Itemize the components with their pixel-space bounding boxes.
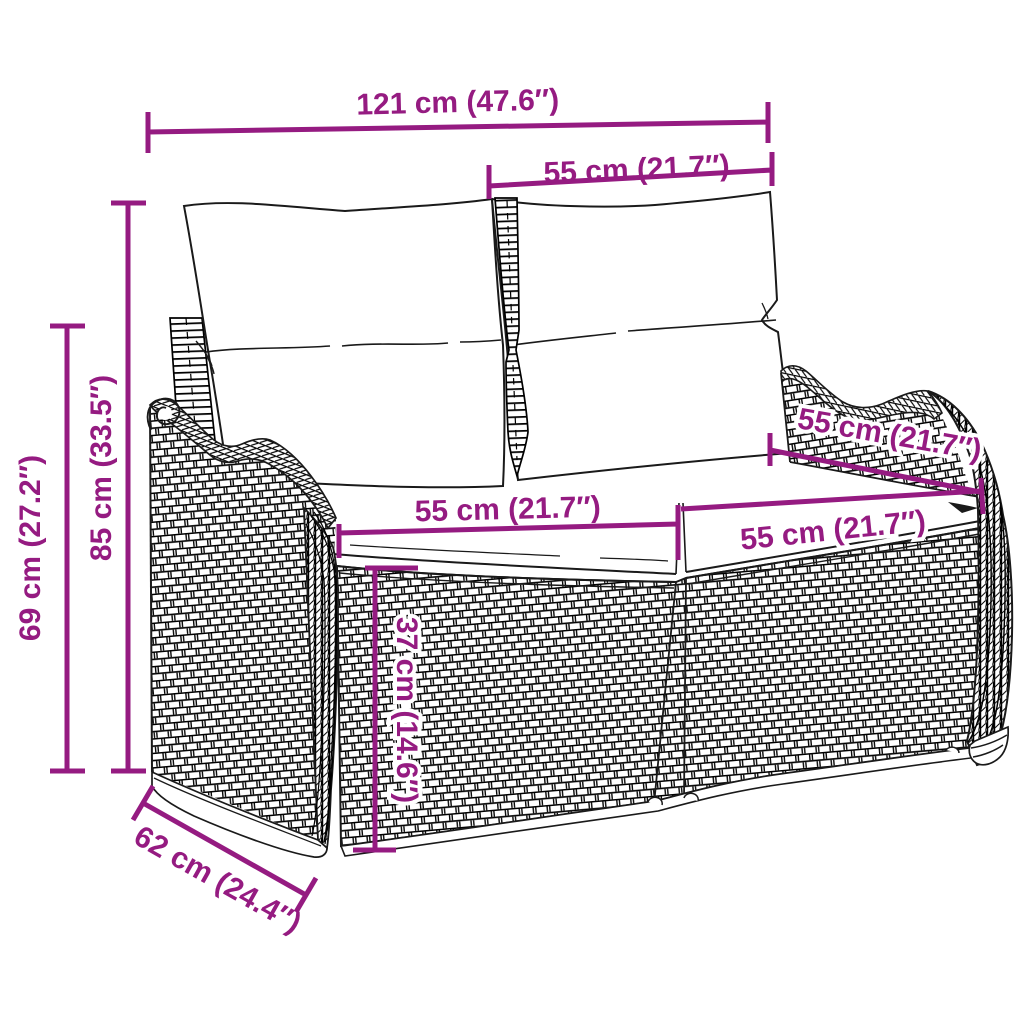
svg-text:69 cm (27.2″): 69 cm (27.2″) bbox=[14, 455, 47, 641]
svg-text:55 cm (21.7″): 55 cm (21.7″) bbox=[414, 491, 601, 529]
svg-text:37 cm (14.6″): 37 cm (14.6″) bbox=[390, 617, 423, 803]
svg-text:85 cm (33.5″): 85 cm (33.5″) bbox=[85, 375, 118, 561]
svg-text:121 cm (47.6″): 121 cm (47.6″) bbox=[356, 83, 560, 121]
